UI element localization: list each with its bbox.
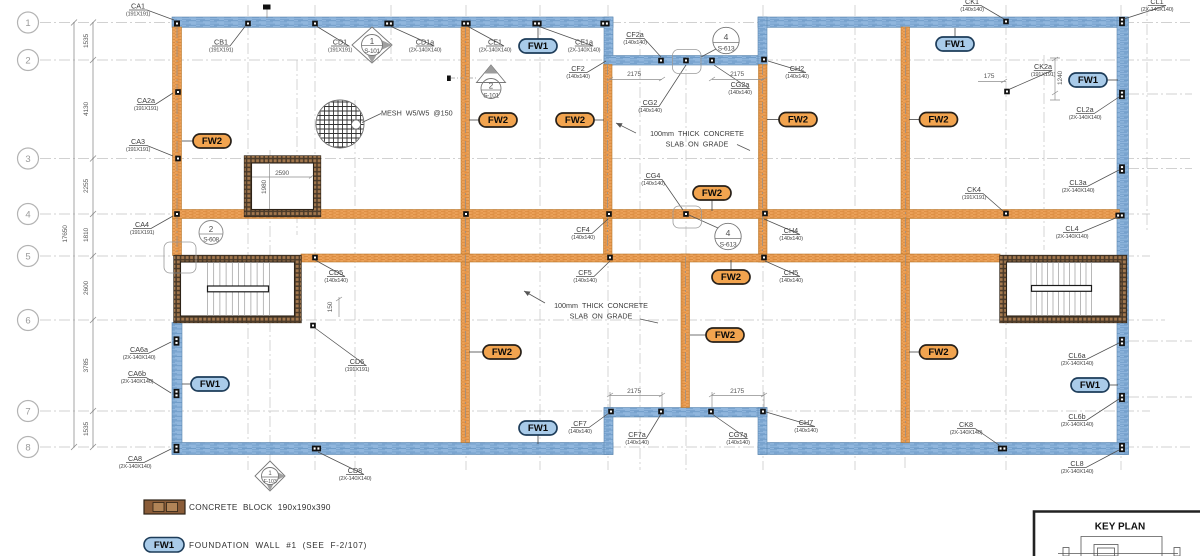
- svg-text:2: 2: [25, 55, 30, 66]
- svg-text:1535: 1535: [83, 422, 90, 436]
- svg-text:(140x140): (140x140): [726, 440, 750, 446]
- svg-text:CL1: CL1: [1150, 0, 1163, 6]
- svg-text:3785: 3785: [83, 358, 90, 372]
- svg-text:100mm THICK CONCRETE: 100mm THICK CONCRETE: [554, 301, 648, 310]
- svg-text:(2X-140X140): (2X-140X140): [1062, 188, 1095, 194]
- svg-text:F-103: F-103: [263, 479, 276, 485]
- svg-text:CG2: CG2: [643, 98, 658, 107]
- svg-text:CG7a: CG7a: [729, 430, 748, 439]
- svg-text:7: 7: [25, 406, 30, 417]
- svg-text:175: 175: [984, 73, 995, 80]
- svg-text:2175: 2175: [730, 71, 744, 78]
- svg-text:CD6: CD6: [350, 357, 364, 366]
- svg-text:(2X-140X140): (2X-140X140): [119, 464, 152, 470]
- svg-text:SLAB ON GRADE: SLAB ON GRADE: [666, 140, 729, 149]
- svg-text:8: 8: [25, 442, 30, 453]
- svg-text:(140x140): (140x140): [779, 236, 803, 242]
- svg-text:(191X191): (191X191): [345, 367, 370, 373]
- svg-text:(191X191): (191X191): [126, 12, 151, 18]
- svg-text:S-608: S-608: [203, 237, 219, 244]
- svg-text:CA3: CA3: [131, 137, 145, 146]
- svg-text:(140x140): (140x140): [728, 90, 752, 96]
- svg-text:(191X191): (191X191): [328, 48, 353, 54]
- svg-text:(2X-140X140): (2X-140X140): [409, 48, 442, 54]
- svg-text:1980: 1980: [261, 180, 268, 194]
- svg-text:(140x140): (140x140): [641, 181, 665, 187]
- svg-text:(2X-140X140): (2X-140X140): [1069, 115, 1102, 121]
- svg-text:(191X191): (191X191): [962, 195, 987, 201]
- svg-text:4: 4: [724, 32, 729, 42]
- svg-text:(140x140): (140x140): [623, 40, 647, 46]
- svg-text:2: 2: [489, 82, 494, 91]
- svg-text:CD1: CD1: [333, 38, 347, 47]
- svg-text:CF7a: CF7a: [628, 430, 646, 439]
- svg-text:(191X191): (191X191): [130, 230, 155, 236]
- svg-text:4: 4: [25, 209, 30, 220]
- svg-text:1: 1: [370, 37, 375, 46]
- svg-text:2600: 2600: [83, 281, 90, 295]
- svg-text:CA1: CA1: [131, 2, 145, 11]
- svg-text:(140x140): (140x140): [571, 235, 595, 241]
- svg-text:4: 4: [726, 228, 731, 238]
- svg-text:(2X-140X140): (2X-140X140): [568, 48, 601, 54]
- svg-text:CK8: CK8: [959, 420, 973, 429]
- svg-text:2175: 2175: [627, 71, 641, 78]
- svg-text:S-613: S-613: [718, 46, 735, 53]
- svg-text:2175: 2175: [730, 388, 744, 395]
- svg-text:17650: 17650: [62, 225, 69, 243]
- svg-text:CL2a: CL2a: [1076, 105, 1093, 114]
- svg-text:(140x140): (140x140): [573, 278, 597, 284]
- svg-text:(2X-140X140): (2X-140X140): [1061, 422, 1094, 428]
- svg-text:6: 6: [25, 315, 30, 326]
- svg-text:CA8: CA8: [128, 454, 142, 463]
- svg-text:CF4: CF4: [576, 225, 590, 234]
- svg-text:SLAB ON GRADE: SLAB ON GRADE: [570, 312, 633, 321]
- svg-text:(140x140): (140x140): [566, 74, 590, 80]
- svg-text:FW1: FW1: [154, 540, 175, 551]
- svg-text:2175: 2175: [627, 388, 641, 395]
- svg-text:2590: 2590: [275, 170, 289, 177]
- svg-text:CF7: CF7: [573, 419, 587, 428]
- svg-text:CONCRETE BLOCK 190x190x390: CONCRETE BLOCK 190x190x390: [189, 503, 331, 512]
- svg-text:150: 150: [327, 301, 334, 312]
- svg-text:(2X-140X140): (2X-140X140): [121, 379, 154, 385]
- svg-text:CL4: CL4: [1065, 224, 1078, 233]
- svg-text:CK2a: CK2a: [1034, 62, 1052, 71]
- svg-text:CB1: CB1: [214, 38, 228, 47]
- svg-text:KEY PLAN: KEY PLAN: [1095, 522, 1145, 533]
- svg-text:CL6b: CL6b: [1068, 412, 1085, 421]
- svg-text:1240: 1240: [1057, 71, 1064, 85]
- svg-text:(140x140): (140x140): [794, 428, 818, 434]
- svg-text:CF2: CF2: [571, 64, 585, 73]
- svg-text:3: 3: [25, 154, 30, 165]
- svg-text:CL3a: CL3a: [1069, 178, 1086, 187]
- svg-text:(140x140): (140x140): [779, 278, 803, 284]
- svg-text:(140x140): (140x140): [568, 429, 592, 435]
- svg-text:1: 1: [25, 18, 30, 29]
- svg-text:MESH W5/W5 @150: MESH W5/W5 @150: [381, 109, 453, 118]
- svg-text:(2X-140X140): (2X-140X140): [123, 355, 156, 361]
- svg-text:CG2a: CG2a: [731, 80, 750, 89]
- svg-text:(2X-140X140): (2X-140X140): [1056, 234, 1089, 240]
- svg-text:(140x140): (140x140): [960, 7, 984, 13]
- svg-text:(2X-140X140): (2X-140X140): [479, 48, 512, 54]
- svg-text:1810: 1810: [83, 228, 90, 242]
- svg-text:CL6a: CL6a: [1068, 351, 1085, 360]
- svg-text:5: 5: [25, 251, 30, 262]
- svg-text:(2X-140X140): (2X-140X140): [1061, 469, 1094, 475]
- svg-text:CF5: CF5: [578, 268, 592, 277]
- svg-text:CG4: CG4: [646, 171, 661, 180]
- svg-text:CA6b: CA6b: [128, 369, 146, 378]
- svg-text:4130: 4130: [83, 102, 90, 116]
- svg-text:CD5: CD5: [329, 268, 343, 277]
- svg-text:S-101: S-101: [483, 93, 499, 100]
- svg-text:(2X-140X140): (2X-140X140): [950, 430, 983, 436]
- svg-text:CL8: CL8: [1070, 459, 1083, 468]
- svg-text:1535: 1535: [83, 34, 90, 48]
- svg-text:FOUNDATION WALL #1 (SEE F-: FOUNDATION WALL #1 (SEE F-2/107): [189, 541, 367, 550]
- svg-text:CA2a: CA2a: [137, 96, 155, 105]
- svg-text:(140x140): (140x140): [638, 108, 662, 114]
- svg-text:(2X-140X140): (2X-140X140): [339, 476, 372, 482]
- svg-text:(2X-140X140): (2X-140X140): [1061, 361, 1094, 367]
- svg-text:2255: 2255: [83, 179, 90, 193]
- svg-text:S-101: S-101: [364, 48, 380, 55]
- svg-text:CA4: CA4: [135, 220, 149, 229]
- svg-text:2: 2: [209, 225, 214, 234]
- svg-text:S-613: S-613: [720, 242, 737, 249]
- svg-text:100mm THICK CONCRETE: 100mm THICK CONCRETE: [650, 129, 744, 138]
- svg-text:(191X191): (191X191): [1031, 72, 1056, 78]
- svg-text:CA6a: CA6a: [130, 345, 148, 354]
- svg-text:CF2a: CF2a: [626, 30, 644, 39]
- svg-text:(140x140): (140x140): [625, 440, 649, 446]
- svg-text:(140x140): (140x140): [324, 278, 348, 284]
- svg-text:(191X191): (191X191): [134, 106, 159, 112]
- svg-text:(140x140): (140x140): [785, 74, 809, 80]
- svg-text:(191X191): (191X191): [209, 48, 234, 54]
- svg-text:CK4: CK4: [967, 185, 981, 194]
- svg-text:(191X191): (191X191): [126, 147, 151, 153]
- svg-text:CK1: CK1: [965, 0, 979, 6]
